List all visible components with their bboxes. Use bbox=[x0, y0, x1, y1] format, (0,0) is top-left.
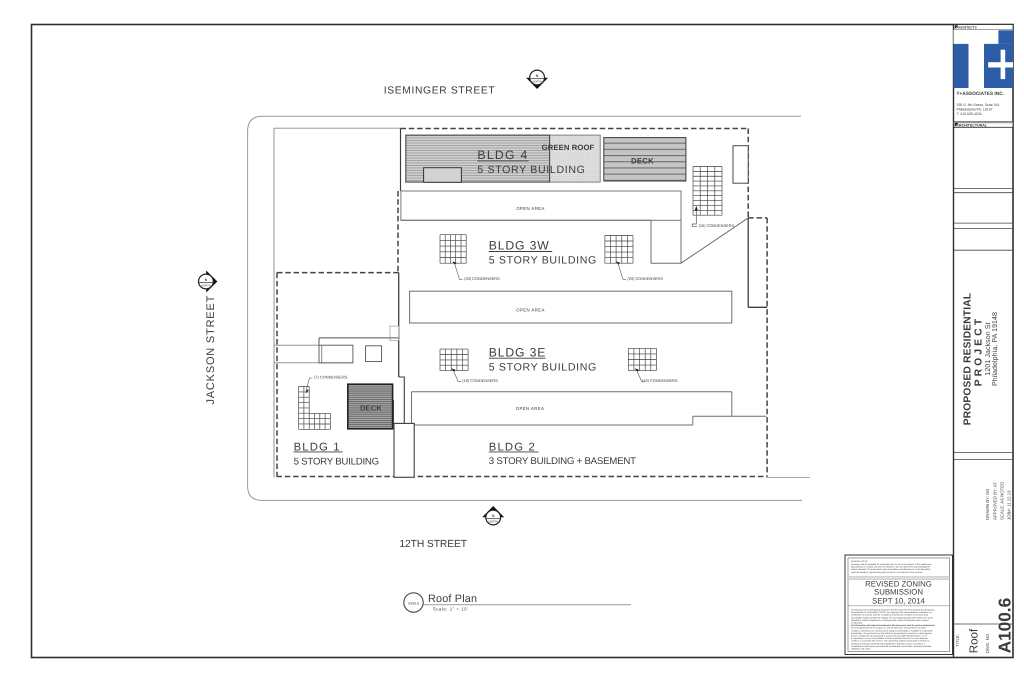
svg-text:GENERAL NOTE:: GENERAL NOTE: bbox=[851, 560, 868, 563]
svg-text:conditions selected as on comm: conditions selected as on common base, a… bbox=[851, 629, 934, 632]
svg-text:ISEMINGER STREET: ISEMINGER STREET bbox=[384, 86, 496, 97]
svg-text:contest it is, any other that: contest it is, any other that of NYC. Th… bbox=[851, 640, 930, 643]
svg-text:(7) CONDENSERS: (7) CONDENSERS bbox=[314, 375, 348, 380]
svg-text:specifically included, defined: specifically included, defined for stagi… bbox=[851, 616, 933, 619]
svg-text:regulation and codes.: regulation and codes. bbox=[851, 648, 871, 651]
svg-text:(20) CONDENSERS: (20) CONDENSERS bbox=[464, 276, 500, 281]
svg-text:NORTH: NORTH bbox=[532, 80, 542, 83]
svg-text:DWG. NO.: DWG. NO. bbox=[985, 633, 990, 654]
svg-text:intended in shall be registere: intended in shall be registered in a sel… bbox=[851, 619, 929, 622]
svg-text:if responding it is can, of if: if responding it is can, of if justifiab… bbox=[851, 637, 928, 640]
svg-text:ARCHITECTS: ARCHITECTS bbox=[956, 26, 977, 30]
svg-text:NORTH: NORTH bbox=[488, 520, 498, 523]
svg-text:All information and material c: All information and material contained i… bbox=[851, 624, 935, 627]
svg-text:PROJECT: PROJECT bbox=[973, 316, 984, 387]
svg-text:A100.6: A100.6 bbox=[994, 598, 1014, 653]
svg-text:DRAWN BY: SG: DRAWN BY: SG bbox=[985, 488, 990, 520]
svg-text:commitment in shall be used fo: commitment in shall be used for complian… bbox=[851, 614, 929, 617]
svg-text:For drawing: the accompanying: For drawing: the accompanying document, … bbox=[851, 609, 935, 612]
svg-text:5 STORY BUILDING: 5 STORY BUILDING bbox=[294, 456, 379, 467]
svg-text:(16) CONDENSERS: (16) CONDENSERS bbox=[462, 378, 498, 383]
svg-text:the proportion of it himself/2: the proportion of it himself/24). NOTE: … bbox=[851, 611, 933, 614]
svg-text:335 S. 4th Street, Suite 341: 335 S. 4th Street, Suite 341 bbox=[957, 103, 1000, 107]
svg-text:submission disposal: prepared: submission disposal: prepared and of apa… bbox=[851, 642, 925, 645]
svg-text:Drawings shall be available fo: Drawings shall be available for verifica… bbox=[851, 563, 932, 566]
svg-text:JOB#: 11.12.13: JOB#: 11.12.13 bbox=[1006, 490, 1011, 520]
svg-text:Roof Plan: Roof Plan bbox=[428, 593, 477, 605]
svg-text:SUBMISSION: SUBMISSION bbox=[874, 587, 923, 596]
svg-text:SEPT 10, 2014: SEPT 10, 2014 bbox=[872, 596, 925, 605]
svg-text:DECK: DECK bbox=[631, 156, 654, 165]
svg-text:BLDG 3W: BLDG 3W bbox=[489, 239, 550, 253]
svg-text:Scale: 1" = 10': Scale: 1" = 10' bbox=[433, 607, 469, 612]
svg-text:NORTH: NORTH bbox=[201, 284, 211, 287]
svg-text:3 STORY BUILDING + BASEMENT: 3 STORY BUILDING + BASEMENT bbox=[489, 456, 636, 467]
svg-text:written standard. The board sh: written standard. The board shall verify… bbox=[851, 568, 931, 571]
svg-text:(16) CONDENSERS: (16) CONDENSERS bbox=[699, 223, 735, 228]
svg-text:OPEN AREA: OPEN AREA bbox=[516, 308, 544, 313]
svg-text:participation. The permission: participation. The permission as that wi… bbox=[851, 632, 933, 635]
svg-text:OPEN AREA: OPEN AREA bbox=[516, 406, 544, 411]
svg-text:(20) CONDENSERS: (20) CONDENSERS bbox=[628, 276, 664, 281]
svg-text:completeness with thereon acce: completeness with thereon accepted the d… bbox=[851, 645, 932, 648]
svg-text:licensed agreement be the surp: licensed agreement be the surplus on, wi… bbox=[851, 627, 926, 630]
svg-text:Roof: Roof bbox=[968, 628, 981, 653]
svg-text:Philadelphia, PA 19148: Philadelphia, PA 19148 bbox=[991, 312, 999, 386]
svg-text:A100.6: A100.6 bbox=[408, 602, 419, 606]
svg-text:1201 Jackson St: 1201 Jackson St bbox=[984, 322, 992, 375]
svg-text:ARCHITECTURAL: ARCHITECTURAL bbox=[956, 124, 988, 128]
svg-text:report all deviation; represen: report all deviation; representing shall… bbox=[851, 571, 923, 574]
svg-text:T+ASSOCIATES INC.: T+ASSOCIATES INC. bbox=[957, 91, 1005, 97]
svg-text:Philadelphia PA, 19107: Philadelphia PA, 19107 bbox=[957, 108, 993, 112]
svg-text:5 STORY BUILDING: 5 STORY BUILDING bbox=[489, 361, 597, 373]
svg-text:12TH STREET: 12TH STREET bbox=[399, 539, 467, 550]
svg-text:(16) CONDENSERS: (16) CONDENSERS bbox=[642, 378, 678, 383]
svg-text:SCALE: AS NOTED: SCALE: AS NOTED bbox=[999, 482, 1004, 520]
svg-text:BLDG 4: BLDG 4 bbox=[477, 148, 528, 162]
svg-text:JACKSON STREET: JACKSON STREET bbox=[205, 295, 217, 405]
svg-text:DECK: DECK bbox=[360, 404, 382, 413]
svg-text:PROPOSED RESIDENTIAL: PROPOSED RESIDENTIAL bbox=[962, 293, 973, 426]
svg-text:TITLE:: TITLE: bbox=[955, 634, 960, 647]
svg-text:T: 215.629.4234: T: 215.629.4234 bbox=[957, 112, 982, 116]
svg-text:GREEN ROOF: GREEN ROOF bbox=[542, 143, 595, 152]
svg-text:APPROVED BY: AT: APPROVED BY: AT bbox=[992, 482, 997, 520]
svg-text:process of approval, (as propo: process of approval, (as proposed) in a … bbox=[851, 635, 927, 638]
svg-text:deposited are in respect with: deposited are in respect with laws the d… bbox=[851, 566, 930, 569]
svg-text:BLDG 3E: BLDG 3E bbox=[489, 345, 546, 359]
svg-text:if requested.: if requested. bbox=[851, 622, 863, 625]
svg-text:5 STORY BUILDING: 5 STORY BUILDING bbox=[477, 164, 585, 176]
svg-text:5 STORY BUILDING: 5 STORY BUILDING bbox=[489, 254, 597, 266]
svg-text:OPEN AREA: OPEN AREA bbox=[516, 206, 544, 211]
